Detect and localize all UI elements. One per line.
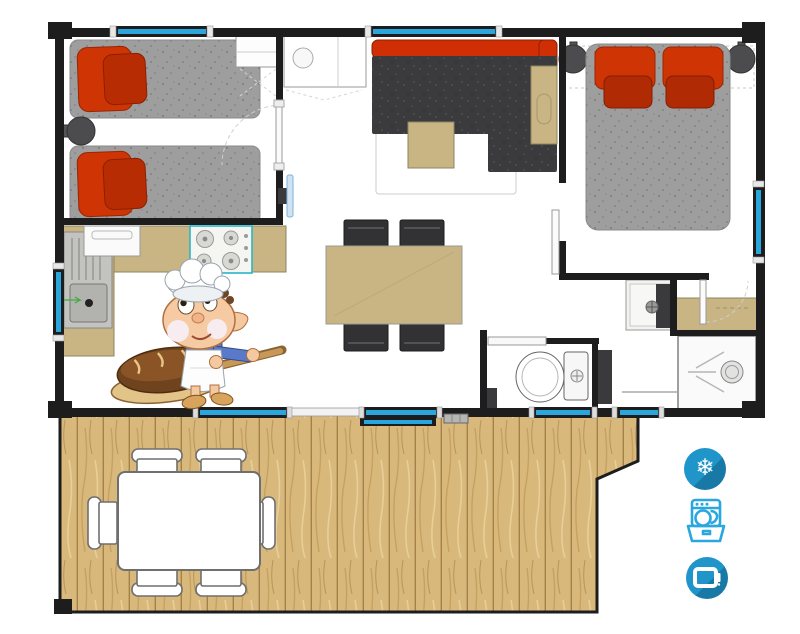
- fridge: [84, 226, 140, 256]
- bedroom-door: [276, 105, 282, 165]
- fixed-panel: [288, 408, 364, 416]
- garden-table: [118, 472, 260, 570]
- master-bedroom-door: [552, 210, 559, 274]
- tv-icon: [686, 557, 728, 599]
- terrace: [54, 413, 638, 614]
- garden-chair: [88, 497, 117, 549]
- sliding-bay-door: [196, 407, 290, 418]
- bathroom-counter: [674, 298, 758, 332]
- floor-plan-page: ❄: [0, 0, 800, 634]
- garden-chair: [132, 568, 182, 596]
- wc-sliding-door: [488, 337, 546, 345]
- living-room: [372, 40, 557, 194]
- air-conditioning-icon: ❄: [684, 448, 726, 490]
- tv-glyph: [686, 557, 728, 599]
- toilet: [516, 352, 588, 402]
- bathroom-door: [700, 280, 706, 324]
- right-window: [753, 181, 764, 263]
- top-window: [365, 26, 502, 37]
- coffee-table: [408, 122, 454, 168]
- dishwasher-icon: [682, 498, 730, 544]
- bottom-window: [532, 407, 594, 418]
- wc-shelf: [596, 350, 612, 404]
- left-window: [53, 263, 64, 341]
- door-step: [444, 414, 468, 423]
- bottom-window: [616, 407, 662, 418]
- side-table: [531, 66, 557, 144]
- dining-table: [326, 246, 462, 324]
- snowflake-glyph: ❄: [695, 457, 714, 480]
- washbasin: [626, 280, 674, 330]
- dishwasher-glyph: [682, 498, 730, 544]
- deck-corner-post: [54, 599, 72, 614]
- floor-plan: [0, 0, 800, 634]
- sliding-bay-door: [360, 407, 440, 426]
- garden-chair: [196, 568, 246, 596]
- top-window: [110, 26, 213, 37]
- master-bedroom: [559, 42, 755, 230]
